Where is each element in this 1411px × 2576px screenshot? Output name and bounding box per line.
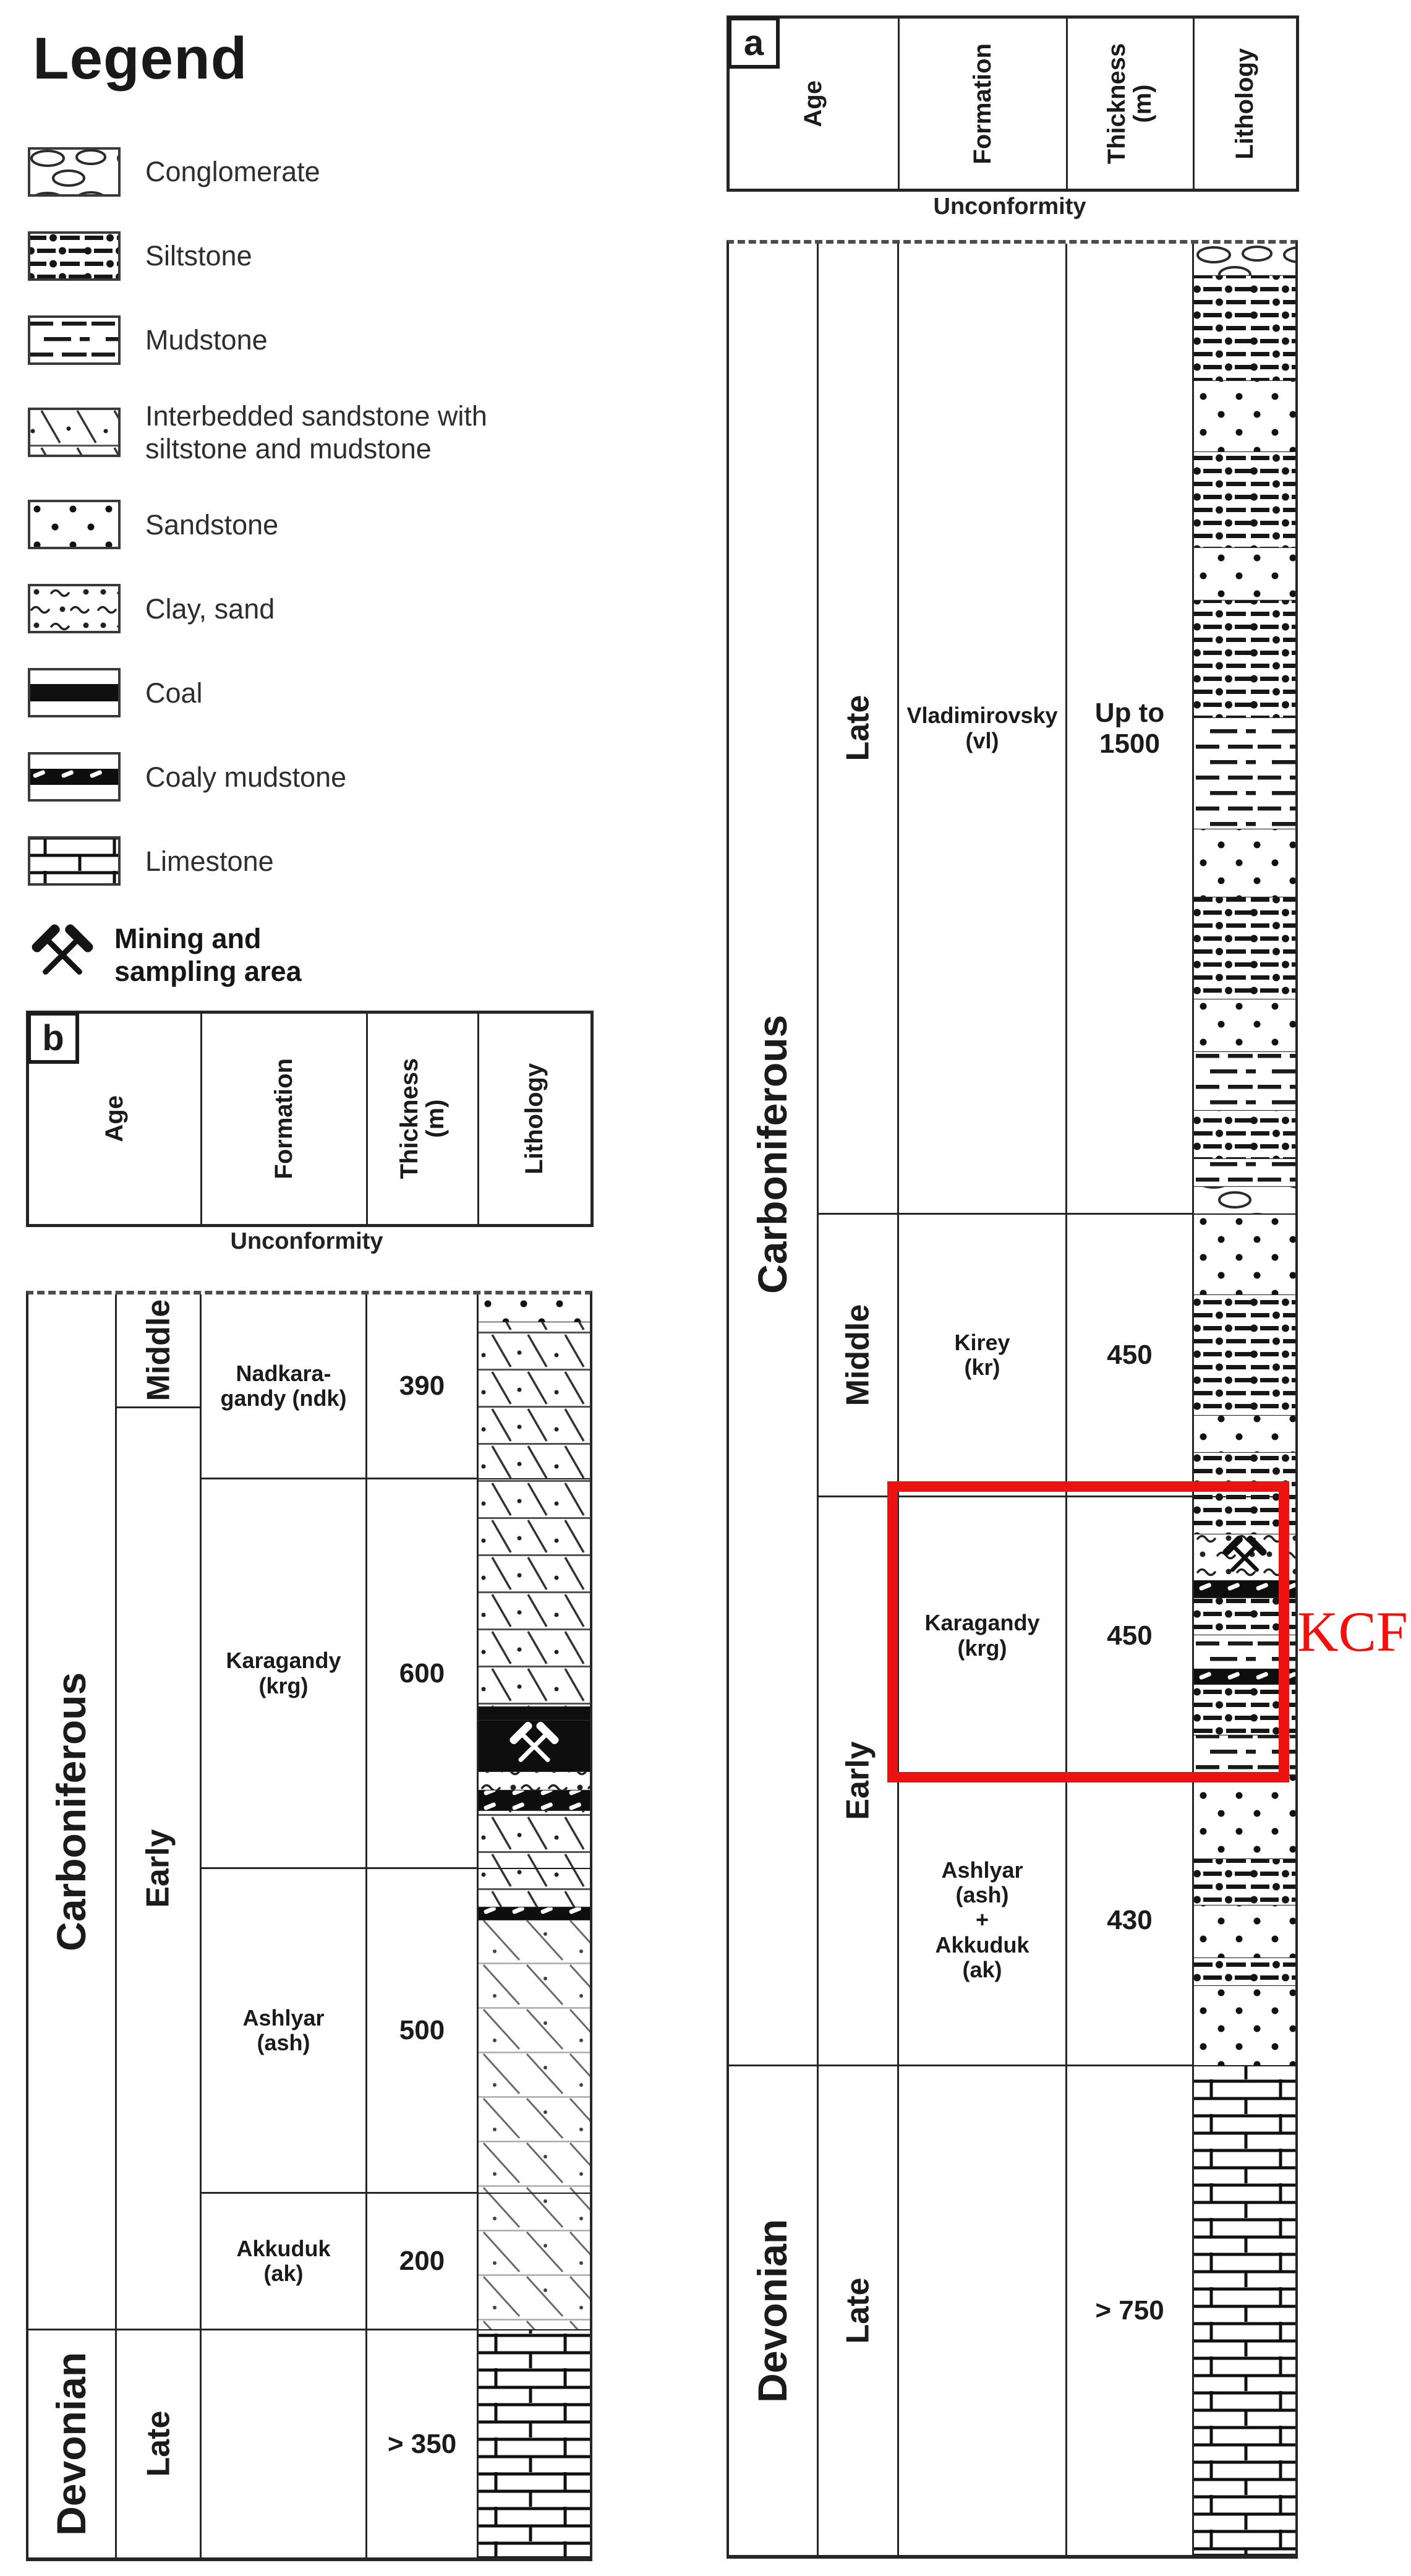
- legend-swatch-clay-sand: [28, 584, 121, 633]
- strat-table-a: AgeFormationThickness (m)LithologyaUncon…: [727, 15, 1293, 2557]
- thickness-cell: 500: [367, 1869, 479, 2194]
- legend-item-interbedded-sandstone: Interbedded sandstone with siltstone and…: [28, 400, 714, 465]
- legend-item-limestone: Limestone: [28, 836, 714, 886]
- legend-item-label: Coaly mudstone: [145, 761, 346, 794]
- formation-cell: [899, 2066, 1067, 2555]
- legend-item-label: Clay, sand: [145, 593, 275, 625]
- thickness-cell: 430: [1067, 1776, 1194, 2066]
- mining-hammers-icon: [28, 920, 97, 990]
- legend-item-label: Limestone: [145, 845, 274, 878]
- panel-label-b: b: [27, 1012, 79, 1064]
- legend-swatch-sandstone: [28, 500, 121, 549]
- epoch-cell: Middle: [819, 1215, 899, 1497]
- legend-item-conglomerate: Conglomerate: [28, 147, 714, 197]
- table-b-body: CarboniferousDevonianMiddleEarlyLateNadk…: [26, 1291, 592, 2561]
- table-a-header: AgeFormationThickness (m)Lithology: [727, 15, 1299, 192]
- legend-item-label: Conglomerate: [145, 155, 320, 188]
- legend-item-label: Coal: [145, 677, 203, 709]
- header-cell: Thickness (m): [1068, 19, 1195, 189]
- legend-title: Legend: [33, 25, 714, 93]
- unconformity-label: Unconformity: [26, 1228, 587, 1255]
- legend-panel: LegendConglomerateSiltstoneMudstoneInter…: [28, 19, 714, 1024]
- formation-cell: Vladimirovsky (vl): [899, 244, 1067, 1215]
- epoch-cell: Late: [819, 244, 899, 1215]
- legend-item-label: Sandstone: [145, 508, 278, 541]
- legend-item-mining-area: Mining and sampling area: [28, 920, 714, 990]
- legend-item-coal: Coal: [28, 668, 714, 717]
- lithology-column: [479, 1294, 590, 2557]
- formation-cell: Nadkara- gandy (ndk): [202, 1294, 367, 1479]
- thickness-cell: > 750: [1067, 2066, 1194, 2555]
- legend-swatch-limestone: [28, 836, 121, 886]
- formation-cell: Ashlyar (ash) + Akkuduk (ak): [899, 1776, 1067, 2066]
- header-cell: Formation: [900, 19, 1068, 189]
- legend-swatch-mudstone: [28, 315, 121, 365]
- legend-swatch-coal: [28, 668, 121, 717]
- unconformity-label: Unconformity: [727, 194, 1293, 220]
- formation-cell: [202, 2330, 367, 2557]
- thickness-cell: > 350: [367, 2330, 479, 2557]
- legend-item-label: Mining and sampling area: [114, 922, 302, 988]
- legend-swatch-interbedded-sandstone: [28, 408, 121, 457]
- legend-item-coaly-mudstone: Coaly mudstone: [28, 752, 714, 802]
- formation-cell: Kirey (kr): [899, 1215, 1067, 1497]
- figure-page: { "page": {"width": 2282, "height": 4165…: [0, 0, 1411, 2576]
- legend-item-clay-sand: Clay, sand: [28, 584, 714, 633]
- formation-cell: Akkuduk (ak): [202, 2194, 367, 2330]
- period-cell: Devonian: [729, 2066, 819, 2555]
- table-b-header: AgeFormationThickness (m)Lithology: [26, 1011, 594, 1227]
- legend-item-label: Siltstone: [145, 239, 252, 272]
- formation-cell: Karagandy (krg): [202, 1479, 367, 1869]
- epoch-cell: Late: [117, 2330, 202, 2557]
- table-a-body: CarboniferousDevonianLateMiddleEarlyLate…: [727, 240, 1298, 2559]
- kcf-label: KCF: [1297, 1603, 1408, 1660]
- legend-item-sandstone: Sandstone: [28, 500, 714, 549]
- thickness-cell: 450: [1067, 1215, 1194, 1497]
- legend-item-label: Interbedded sandstone with siltstone and…: [145, 400, 487, 465]
- legend-swatch-coaly-mudstone: [28, 752, 121, 802]
- legend-item-label: Mudstone: [145, 323, 268, 356]
- strat-table-b: AgeFormationThickness (m)LithologybUncon…: [26, 1011, 587, 2560]
- header-cell: Lithology: [1195, 19, 1296, 189]
- panel-label-a: a: [728, 17, 780, 69]
- thickness-cell: 600: [367, 1479, 479, 1869]
- period-cell: Devonian: [28, 2330, 117, 2557]
- legend-item-mudstone: Mudstone: [28, 315, 714, 365]
- epoch-cell: Late: [819, 2066, 899, 2555]
- thickness-cell: Up to 1500: [1067, 244, 1194, 1215]
- epoch-cell: Early: [117, 1408, 202, 2330]
- legend-swatch-siltstone: [28, 231, 121, 281]
- header-cell: Formation: [202, 1014, 368, 1224]
- kcf-highlight-box: [887, 1481, 1289, 1782]
- period-cell: Carboniferous: [729, 244, 819, 2066]
- epoch-cell: Middle: [117, 1294, 202, 1408]
- lithology-column: [1194, 244, 1295, 2555]
- header-cell: Thickness (m): [368, 1014, 479, 1224]
- period-cell: Carboniferous: [28, 1294, 117, 2330]
- formation-cell: Ashlyar (ash): [202, 1869, 367, 2194]
- legend-swatch-conglomerate: [28, 147, 121, 197]
- thickness-cell: 200: [367, 2194, 479, 2330]
- legend-item-siltstone: Siltstone: [28, 231, 714, 281]
- thickness-cell: 390: [367, 1294, 479, 1479]
- header-cell: Lithology: [479, 1014, 590, 1224]
